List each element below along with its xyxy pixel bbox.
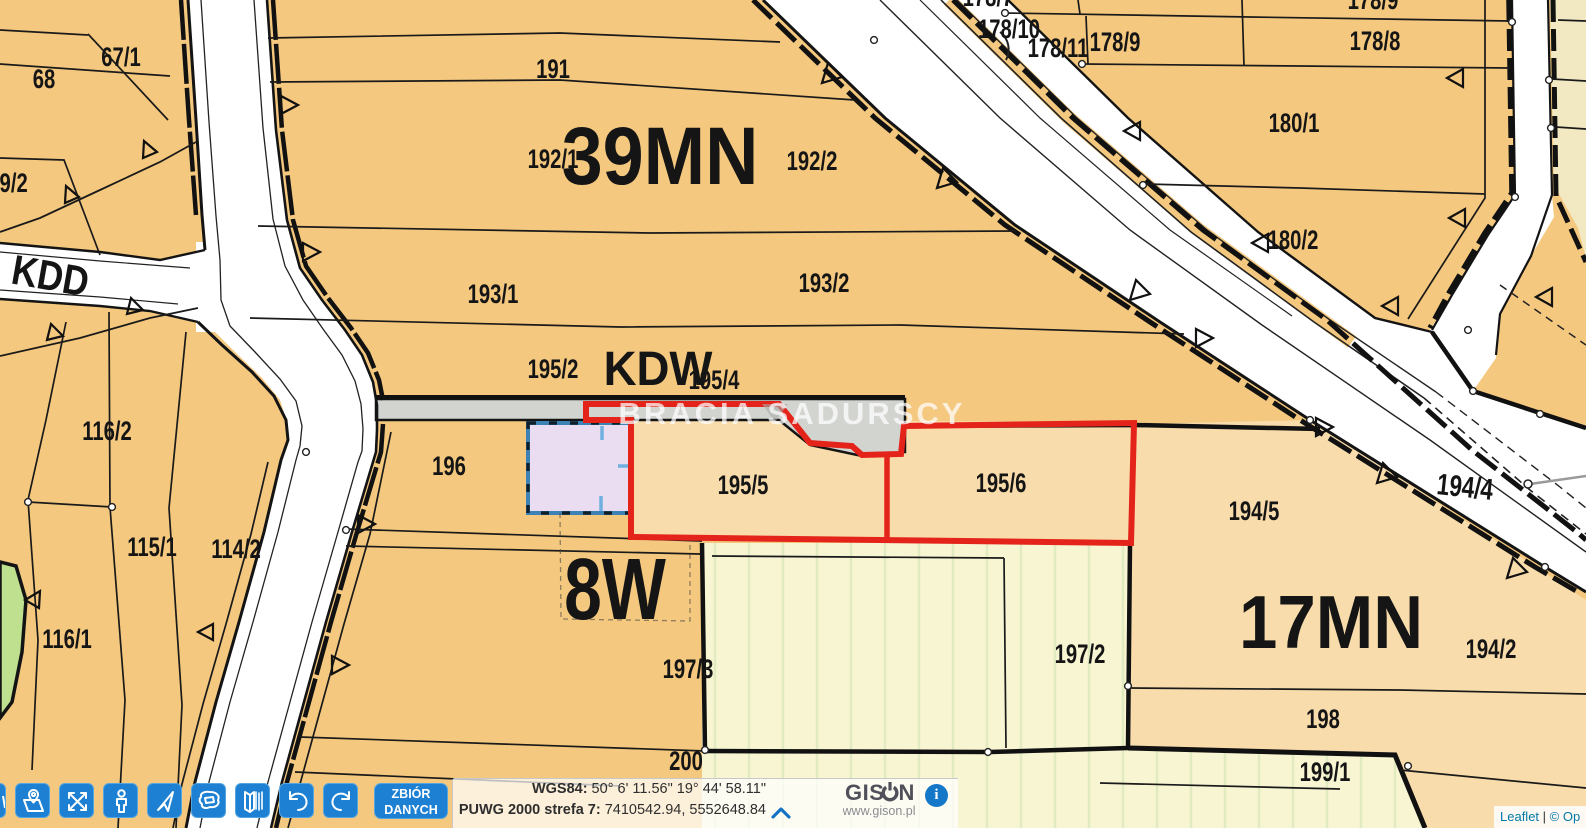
svg-text:116/2: 116/2 bbox=[82, 416, 132, 447]
svg-text:N: N bbox=[899, 780, 915, 805]
svg-text:178/8: 178/8 bbox=[1350, 26, 1401, 57]
svg-text:198: 198 bbox=[1306, 704, 1340, 735]
svg-text:197/3: 197/3 bbox=[663, 654, 714, 685]
svg-text:180/1: 180/1 bbox=[1269, 108, 1320, 139]
svg-text:BRACIA SADURSCY: BRACIA SADURSCY bbox=[619, 396, 966, 431]
svg-text:KDW: KDW bbox=[604, 342, 714, 395]
svg-text:194/5: 194/5 bbox=[1229, 496, 1280, 527]
svg-text:194/2: 194/2 bbox=[1466, 634, 1517, 665]
svg-text:178/9: 178/9 bbox=[1348, 0, 1399, 16]
svg-text:195/5: 195/5 bbox=[718, 470, 769, 501]
svg-text:196: 196 bbox=[432, 451, 466, 482]
svg-text:200: 200 bbox=[669, 746, 703, 777]
svg-text:114/2: 114/2 bbox=[211, 534, 261, 565]
svg-text:115/1: 115/1 bbox=[127, 532, 177, 563]
svg-text:197/2: 197/2 bbox=[1055, 639, 1106, 670]
svg-text:180/2: 180/2 bbox=[1268, 225, 1319, 256]
svg-text:67/1: 67/1 bbox=[101, 42, 140, 73]
svg-text:195/2: 195/2 bbox=[528, 354, 579, 385]
svg-text:194/4: 194/4 bbox=[1435, 467, 1495, 507]
svg-text:69/2: 69/2 bbox=[0, 168, 28, 199]
svg-text:178/7: 178/7 bbox=[963, 0, 1014, 13]
svg-text:191: 191 bbox=[536, 54, 570, 85]
svg-text:8W: 8W bbox=[564, 540, 666, 638]
svg-text:199/1: 199/1 bbox=[1300, 757, 1351, 788]
svg-text:39MN: 39MN bbox=[562, 109, 759, 202]
svg-text:193/1: 193/1 bbox=[468, 279, 519, 310]
svg-text:178/9: 178/9 bbox=[1090, 27, 1141, 58]
svg-text:68: 68 bbox=[33, 64, 56, 95]
svg-text:193/2: 193/2 bbox=[799, 268, 850, 299]
svg-text:116/1: 116/1 bbox=[42, 624, 92, 655]
svg-text:GIS: GIS bbox=[845, 780, 884, 805]
svg-text:www.gison.pl: www.gison.pl bbox=[843, 804, 915, 818]
svg-text:195/6: 195/6 bbox=[976, 468, 1027, 499]
svg-text:178/11: 178/11 bbox=[1028, 33, 1089, 64]
svg-text:17MN: 17MN bbox=[1239, 581, 1423, 664]
svg-text:192/2: 192/2 bbox=[787, 146, 838, 177]
